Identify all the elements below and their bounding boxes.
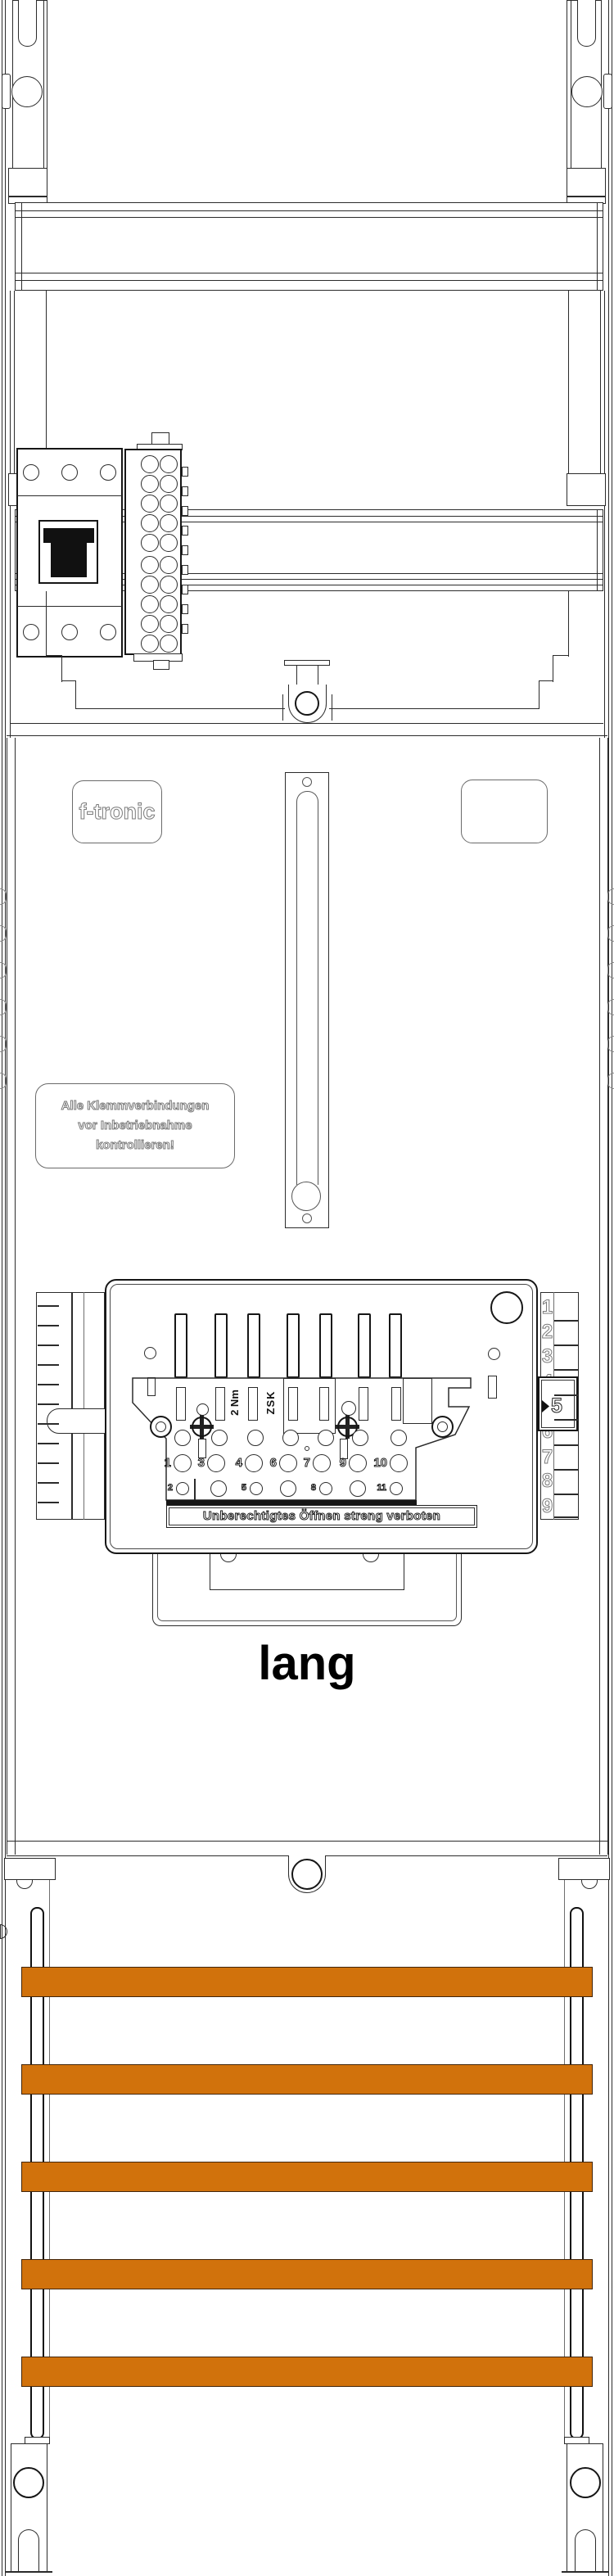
left-edge-notch (0, 1924, 7, 1939)
zsk-window-topleft-slot (147, 1377, 156, 1396)
slot-plate-bottom-hole (302, 1213, 312, 1223)
bottom-right-bracket-arch (575, 2529, 596, 2573)
hanger-shoulder-line (332, 694, 332, 721)
terminal-block-hole (160, 595, 178, 613)
zsk-right-opening (403, 1378, 432, 1424)
hook-shelf-line (329, 708, 539, 709)
warning-bar-inner: Unberechtigtes Öffnen streng verboten (169, 1507, 475, 1525)
main-switch-divider (17, 495, 122, 496)
check-label-line: vor Inbetriebnahme (36, 1116, 234, 1136)
hole-row-a (352, 1430, 368, 1446)
din-rail-1-line (15, 217, 603, 218)
hook-line (46, 655, 61, 656)
hook-line (75, 680, 76, 709)
busbar (21, 2162, 593, 2192)
top-left-rail-innerline (43, 0, 44, 169)
terminal-block-tab (182, 545, 188, 555)
terminal-block-hole (141, 475, 159, 493)
terminal-block-tab (182, 604, 188, 614)
mid-strut-line (600, 291, 601, 473)
terminal-block-hole (141, 534, 159, 552)
terminal-number: 4 (226, 1457, 242, 1470)
hanger-stem-line (296, 665, 297, 686)
busbar (21, 2357, 593, 2387)
top-right-rail-innerline (571, 0, 571, 169)
bottom-left-bracket-hole (13, 2467, 44, 2498)
warning-text: Unberechtigtes Öffnen streng verboten (203, 1509, 440, 1523)
terminal-block-hole (160, 475, 178, 493)
hole-row-c-small (319, 1482, 332, 1495)
size-caption: lang (225, 1636, 389, 1690)
meter-cabinet-technical-drawing: f-tronic Alle Klemmverbindungen vor Inbe… (0, 0, 614, 2576)
hanger-stem-line (318, 665, 318, 686)
hole-row-a (391, 1430, 407, 1446)
terminal-block-tab (182, 585, 188, 594)
terminal-block-hole (141, 595, 159, 613)
right-comb-tick (554, 1369, 578, 1371)
right-comb-tick (554, 1444, 578, 1446)
busbar-support-line (564, 1880, 565, 2437)
terminal-block-tab (182, 624, 188, 634)
terminal-number: 7 (294, 1457, 310, 1470)
switch-screw-hole (100, 464, 116, 481)
top-right-rail-slot (577, 0, 596, 47)
din-rail-1-line (15, 273, 603, 273)
mid-right-foot-block (567, 473, 606, 506)
hook-line (539, 680, 540, 709)
bottom-left-bracket (4, 1858, 56, 1880)
right-comb-tick (554, 1344, 578, 1346)
panel-bottom-line (326, 1855, 607, 1856)
slot-plate-slot (296, 791, 318, 1185)
zsk-upper-slot (359, 1387, 368, 1421)
terminal-block-tab (182, 506, 188, 516)
terminal-block-hole (160, 495, 178, 513)
terminal-block-tab (182, 467, 188, 477)
ring-screw-right-inner (437, 1421, 448, 1432)
terminal-block-hole (160, 455, 178, 473)
panel-edge-bump (607, 962, 614, 978)
hook-line (553, 655, 568, 656)
panel-top-line (11, 723, 603, 724)
bottom-left-bracket-arch (18, 2529, 39, 2573)
depth-pointer-value: 5 (547, 1394, 567, 1417)
hole-row-c (280, 1480, 296, 1497)
switch-screw-hole (23, 464, 39, 481)
hole-row-b (207, 1454, 225, 1472)
panel-top-line (7, 735, 607, 736)
hole-row-a (211, 1430, 228, 1446)
blank-badge (461, 780, 548, 843)
hook-line (568, 591, 569, 657)
hook-line (553, 655, 553, 682)
din-rail-1 (15, 202, 603, 291)
busbar (21, 1967, 593, 1997)
switch-screw-hole (61, 624, 78, 640)
terminal-block-hole (141, 635, 159, 653)
switch-screw-hole (23, 624, 39, 640)
terminal-block-hole (141, 576, 159, 594)
terminal-block-bottom-tab (153, 660, 169, 670)
top-left-rail-hole (11, 76, 43, 107)
zsk-upper-slot (215, 1387, 225, 1421)
bottom-right-bracket (558, 1858, 610, 1880)
left-comb-tick (38, 1403, 59, 1405)
main-switch-divider (17, 606, 122, 607)
hook-line (61, 680, 75, 681)
top-right-keyhole-clip (603, 74, 612, 109)
terminal-number: 10 (371, 1457, 387, 1470)
hole-row-c-small (250, 1482, 263, 1495)
left-comb-tick (38, 1462, 59, 1464)
bottom-right-bracket-notch (581, 1880, 598, 1889)
left-comb-tick (38, 1364, 59, 1366)
hole-row-a (318, 1430, 334, 1446)
main-switch-handle-top (43, 528, 94, 543)
main-switch-handle-stem (51, 543, 87, 577)
zsk-upper-slot (248, 1387, 258, 1421)
din-rail-1-line (15, 210, 603, 211)
terminal-number-small: 2 (158, 1483, 173, 1494)
zsk-upper-slot (288, 1387, 298, 1421)
terminal-block-tab (182, 526, 188, 536)
hole-row-b (313, 1454, 331, 1472)
right-comb-tick (554, 1320, 578, 1322)
bottom-hanger-hole (291, 1859, 323, 1890)
brand-badge: f-tronic (72, 780, 162, 843)
mid-strut-line (14, 291, 15, 473)
panel-bottom-line (7, 1855, 288, 1856)
slot-plate-top-hole (302, 777, 312, 787)
terminal-number: 9 (330, 1457, 346, 1470)
zsk-upper-slot (391, 1387, 401, 1421)
busbar (21, 2259, 593, 2289)
right-comb-tick (554, 1394, 578, 1396)
terminal-block-hole (160, 576, 178, 594)
busbar (21, 2064, 593, 2095)
check-label-line: Alle Klemmverbindungen (36, 1096, 234, 1116)
hole-row-b (349, 1454, 367, 1472)
din-rail-2-endcap (597, 509, 598, 591)
hook-line (61, 655, 62, 682)
terminal-number-small: 5 (232, 1483, 246, 1494)
hanger-shoulder-line (282, 694, 283, 721)
terminal-number-small: 8 (301, 1483, 316, 1494)
panel-edge-bump (607, 999, 614, 1015)
panel-edge-bump (607, 925, 614, 942)
torque-label: 2 Nm (228, 1379, 242, 1426)
terminal-block-hole (141, 514, 159, 532)
left-comb-tick (38, 1305, 59, 1307)
device-type-label: ZSK (264, 1379, 276, 1426)
panel-edge-bump (607, 1036, 614, 1052)
left-comb-tick (38, 1384, 59, 1385)
panel-bottom-line (7, 1841, 607, 1842)
terminal-block-hole (160, 514, 178, 532)
bottom-left-bracket-notch (16, 1880, 33, 1889)
hook-shelf-line (75, 708, 285, 709)
top-right-rail-foot (567, 168, 606, 197)
mid-strut-line (10, 291, 11, 738)
terminal-block-hole (141, 556, 159, 574)
bottom-right-baseline (562, 2571, 609, 2573)
ring-screw-left-inner (156, 1421, 166, 1432)
bottom-right-bracket-hole (570, 2467, 601, 2498)
terminal-block-hole (141, 495, 159, 513)
terminal-number-small: 11 (372, 1483, 386, 1494)
din-rail-1-line (15, 280, 603, 281)
cross-screw-left (192, 1417, 212, 1437)
top-left-keyhole-clip (2, 74, 11, 109)
zsk-upper-slot (319, 1387, 329, 1421)
right-comb-tick (554, 1469, 578, 1471)
slot-plate-bulge (291, 1182, 321, 1211)
terminal-block-hole (141, 615, 159, 633)
right-comb-tick (554, 1516, 578, 1518)
switch-screw-hole (61, 464, 78, 481)
hook-line (539, 680, 553, 681)
din-rail-1-endcap (21, 202, 22, 291)
terminal-number: 6 (260, 1457, 277, 1470)
left-comb-tick (38, 1325, 59, 1326)
terminal-number: 3 (188, 1457, 205, 1470)
hole-row-c (350, 1480, 366, 1497)
tiny-center-hole (305, 1446, 309, 1451)
din-rail-1-endcap (597, 202, 598, 291)
switch-screw-hole (100, 624, 116, 640)
right-comb-tick (554, 1419, 578, 1421)
terminal-block-hole (160, 635, 178, 653)
terminal-block-hole (141, 455, 159, 473)
top-left-rail-slot (18, 0, 37, 47)
terminal-number: 1 (155, 1457, 171, 1470)
mid-strut-line (46, 291, 47, 473)
terminal-block-tab (182, 486, 188, 496)
hole-row-a (174, 1430, 191, 1446)
hole-row-a (282, 1430, 299, 1446)
busbar-support-line (49, 1880, 50, 2437)
hanger-bar (284, 660, 330, 666)
left-comb-tick (38, 1443, 59, 1444)
terminal-block-hole (160, 615, 178, 633)
mid-strut-line (604, 291, 605, 738)
mid-strut-line (568, 291, 569, 473)
check-label: Alle Klemmverbindungen vor Inbetriebnahm… (35, 1083, 235, 1168)
row-tick (194, 1479, 196, 1502)
small-hole-above-screw (196, 1403, 209, 1416)
top-right-rail-hole (571, 76, 603, 107)
top-left-rail-foot (8, 168, 47, 197)
terminal-block-tab (182, 565, 188, 575)
hanger-hole (295, 691, 319, 716)
terminal-block-hole (160, 556, 178, 574)
hook-line (46, 591, 47, 657)
hole-row-c (210, 1480, 227, 1497)
left-comb-tick (38, 1423, 59, 1425)
hole-row-c-small (390, 1482, 403, 1495)
panel-edge-bump (607, 1073, 614, 1089)
terminal-block-hole (160, 534, 178, 552)
check-label-line: kontrollieren! (36, 1136, 234, 1155)
hole-row-b (390, 1454, 408, 1472)
small-hole-above-screw (341, 1401, 356, 1416)
left-comb-tick (38, 1482, 59, 1484)
brand-logo-text: f-tronic (79, 781, 156, 842)
left-comb-tick (38, 1502, 59, 1503)
left-comb-tick (38, 1344, 59, 1346)
zsk-upper-slot (176, 1387, 186, 1421)
bottom-left-baseline (5, 2571, 52, 2573)
hole-row-a (247, 1430, 264, 1446)
hole-row-c-small (176, 1482, 189, 1495)
right-comb-tick (554, 1494, 578, 1495)
panel-edge-bump (607, 888, 614, 905)
